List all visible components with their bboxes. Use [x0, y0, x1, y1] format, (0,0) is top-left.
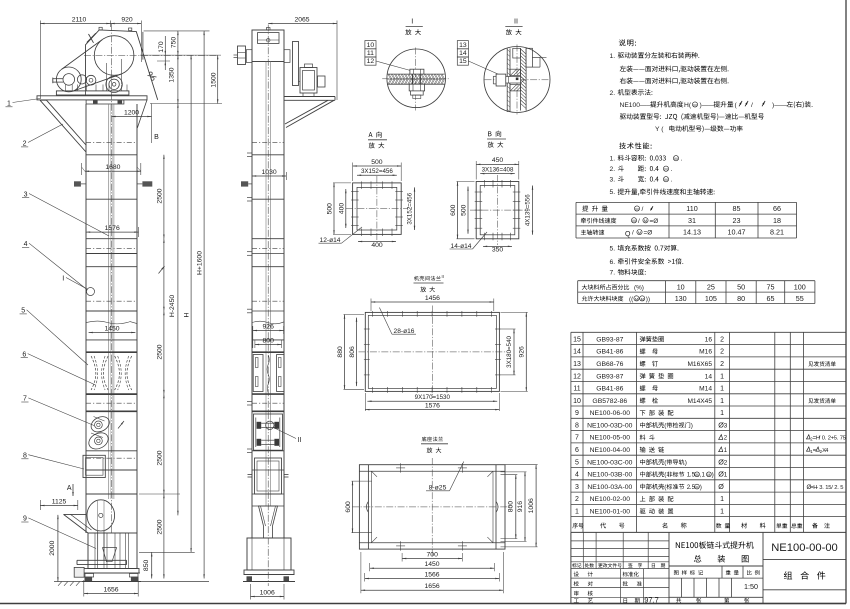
- svg-text:1: 1: [720, 496, 724, 503]
- svg-text:M16X65: M16X65: [687, 361, 712, 368]
- svg-text:5: 5: [21, 308, 25, 315]
- svg-text:GB41-86: GB41-86: [596, 386, 623, 393]
- svg-text:500: 500: [327, 203, 334, 215]
- svg-text:NE100-00-00: NE100-00-00: [771, 542, 838, 554]
- svg-text:2500: 2500: [157, 519, 164, 534]
- svg-text:8: 8: [575, 422, 579, 429]
- svg-text:1: 1: [720, 373, 724, 380]
- svg-text:H-2450: H-2450: [169, 295, 176, 318]
- svg-text:/: /: [638, 218, 640, 225]
- svg-text:M: M: [674, 156, 677, 161]
- svg-text:1656: 1656: [103, 586, 118, 593]
- svg-text:8: 8: [23, 453, 27, 460]
- svg-text:/: /: [632, 230, 634, 237]
- svg-text:1450: 1450: [424, 561, 439, 568]
- svg-text:4: 4: [24, 241, 28, 248]
- svg-text:1576: 1576: [425, 402, 440, 409]
- svg-text:M: M: [638, 230, 641, 235]
- svg-text:1: 1: [702, 472, 706, 479]
- svg-text:55: 55: [796, 294, 804, 303]
- svg-text:1: 1: [720, 508, 724, 515]
- svg-text:6: 6: [575, 447, 579, 454]
- svg-text:8.21: 8.21: [770, 228, 784, 237]
- svg-text:M: M: [641, 296, 644, 301]
- svg-text:350: 350: [492, 247, 504, 254]
- svg-text:1: 1: [720, 386, 724, 393]
- svg-text:B: B: [154, 134, 159, 141]
- svg-text:11: 11: [573, 386, 580, 393]
- svg-text:3.: 3.: [610, 177, 616, 184]
- svg-text:800: 800: [508, 501, 515, 513]
- svg-text:NE100——: NE100——: [620, 102, 654, 109]
- svg-text:3X152=456: 3X152=456: [407, 192, 414, 224]
- svg-text:2: 2: [23, 141, 27, 148]
- svg-text:1006: 1006: [528, 498, 535, 513]
- svg-text:500: 500: [371, 159, 383, 166]
- svg-text:5: 5: [843, 436, 846, 442]
- svg-text:)——: )——: [700, 102, 716, 109]
- svg-text:500: 500: [461, 204, 468, 216]
- svg-text:/: /: [642, 206, 644, 213]
- svg-text:12: 12: [573, 373, 581, 380]
- svg-text:.: .: [671, 166, 673, 173]
- svg-text:A: A: [67, 485, 72, 492]
- svg-text:700: 700: [427, 551, 439, 558]
- svg-text:600: 600: [450, 204, 457, 216]
- svg-text:Y (: Y (: [655, 126, 664, 133]
- svg-text:18: 18: [773, 216, 781, 225]
- svg-text:M: M: [696, 473, 699, 477]
- svg-text:M: M: [635, 296, 638, 301]
- svg-text:1: 1: [575, 508, 579, 515]
- svg-text:-: -: [816, 485, 818, 491]
- svg-text:926: 926: [263, 323, 275, 330]
- svg-text:7: 7: [23, 396, 27, 403]
- svg-text:5.: 5.: [610, 189, 616, 196]
- svg-text:10: 10: [573, 398, 581, 405]
- svg-text:12: 12: [367, 58, 375, 65]
- svg-text:1566: 1566: [424, 571, 439, 578]
- svg-text:2: 2: [724, 459, 728, 466]
- svg-text:/: /: [751, 102, 753, 109]
- svg-text:M: M: [696, 485, 699, 489]
- svg-text:1: 1: [724, 472, 728, 479]
- svg-text:450: 450: [492, 157, 504, 164]
- svg-text:9X170=1530: 9X170=1530: [415, 394, 451, 401]
- svg-text:GB93-87: GB93-87: [596, 336, 623, 343]
- svg-text:75: 75: [767, 283, 775, 292]
- svg-text:7.: 7.: [610, 270, 616, 277]
- svg-text:1.: 1.: [610, 53, 616, 60]
- svg-text:1125: 1125: [52, 498, 67, 505]
- svg-text:2500: 2500: [157, 450, 164, 465]
- svg-text:II: II: [442, 274, 444, 279]
- svg-text:M: M: [632, 218, 635, 223]
- svg-text:II: II: [298, 437, 302, 444]
- svg-text:10: 10: [677, 283, 685, 292]
- svg-text:130: 130: [675, 294, 687, 303]
- svg-text:13: 13: [459, 42, 467, 49]
- svg-text:11: 11: [367, 50, 374, 57]
- svg-text:880: 880: [337, 346, 344, 358]
- svg-text:NE100-03A-00: NE100-03A-00: [587, 484, 632, 491]
- svg-text:GB68-76: GB68-76: [596, 361, 623, 368]
- svg-text:31: 31: [688, 216, 696, 225]
- svg-text:14: 14: [573, 349, 581, 356]
- svg-text:NE100-06-00: NE100-06-00: [590, 410, 631, 417]
- svg-text:806: 806: [349, 346, 356, 358]
- svg-text:7: 7: [575, 435, 579, 442]
- svg-text:2500: 2500: [157, 188, 164, 203]
- svg-text:II: II: [514, 17, 518, 26]
- svg-text:1680: 1680: [105, 164, 120, 171]
- svg-text:): ): [712, 472, 714, 479]
- svg-text:65: 65: [767, 294, 775, 303]
- svg-text:)——: )——: [772, 102, 788, 109]
- svg-text:M14X45: M14X45: [687, 398, 712, 405]
- svg-text:2: 2: [575, 496, 579, 503]
- svg-text:NE100-03D-00: NE100-03D-00: [587, 422, 633, 429]
- svg-text:3: 3: [724, 422, 728, 429]
- svg-text:3X152=456: 3X152=456: [361, 168, 393, 175]
- svg-text:66: 66: [773, 204, 781, 213]
- svg-text:1576: 1576: [105, 225, 120, 232]
- svg-text:NE100-01-00: NE100-01-00: [590, 508, 631, 515]
- svg-text:M: M: [693, 102, 696, 107]
- svg-text:800: 800: [263, 337, 275, 344]
- svg-text:GB5782-86: GB5782-86: [592, 398, 627, 405]
- svg-text:NE100-04-00: NE100-04-00: [590, 447, 631, 454]
- svg-text:M: M: [664, 167, 667, 172]
- svg-text:850: 850: [143, 560, 150, 572]
- svg-text:M: M: [664, 177, 667, 182]
- svg-text:916: 916: [517, 501, 524, 513]
- svg-text:): ): [700, 484, 702, 491]
- svg-text:Ø: Ø: [718, 482, 724, 491]
- svg-text:3X180=540: 3X180=540: [506, 335, 513, 367]
- svg-text:6.: 6.: [610, 259, 616, 266]
- svg-text:1200: 1200: [124, 109, 139, 116]
- svg-text:M: M: [635, 206, 638, 211]
- svg-text:10.47: 10.47: [728, 228, 746, 237]
- svg-text:920: 920: [121, 16, 133, 23]
- svg-text:1006: 1006: [260, 589, 275, 596]
- svg-text:.: .: [681, 156, 683, 163]
- svg-text:2110: 2110: [72, 16, 87, 23]
- svg-text:1500: 1500: [210, 72, 217, 87]
- svg-text:80: 80: [737, 294, 745, 303]
- svg-text:): ): [691, 422, 693, 429]
- svg-text:600: 600: [345, 501, 352, 513]
- svg-text:3: 3: [24, 191, 28, 198]
- svg-text:97.7: 97.7: [644, 595, 658, 604]
- svg-text:25: 25: [707, 283, 715, 292]
- svg-text:170: 170: [158, 41, 165, 53]
- svg-text:M16: M16: [699, 349, 712, 356]
- svg-text:)): )): [646, 296, 650, 303]
- svg-text:15: 15: [573, 336, 581, 343]
- svg-text:400: 400: [338, 203, 345, 215]
- svg-text:9: 9: [575, 410, 579, 417]
- svg-text:GB41-86: GB41-86: [596, 349, 623, 356]
- svg-text:14.13: 14.13: [683, 228, 701, 237]
- svg-text:GB93-87: GB93-87: [596, 373, 623, 380]
- svg-text:2: 2: [720, 361, 724, 368]
- svg-text:.: .: [671, 177, 673, 184]
- svg-text:3: 3: [575, 484, 579, 491]
- svg-text:M: M: [707, 473, 710, 477]
- svg-text:1350: 1350: [168, 67, 175, 82]
- svg-text:2: 2: [720, 349, 724, 356]
- svg-text:I: I: [62, 273, 64, 282]
- svg-text:9: 9: [23, 516, 27, 523]
- svg-text:NE100-03C-00: NE100-03C-00: [587, 459, 633, 466]
- svg-text:110: 110: [686, 204, 697, 213]
- svg-text:=Ø: =Ø: [644, 230, 653, 237]
- svg-text:4X139=556: 4X139=556: [525, 194, 532, 226]
- svg-text:1: 1: [720, 398, 724, 405]
- svg-text:2000: 2000: [49, 540, 56, 555]
- svg-text:1656: 1656: [425, 583, 440, 590]
- svg-text:85: 85: [733, 204, 741, 213]
- svg-text:2065: 2065: [294, 16, 309, 23]
- svg-text:1.: 1.: [610, 156, 616, 163]
- svg-text:2500: 2500: [157, 344, 164, 359]
- svg-text:1: 1: [720, 410, 724, 417]
- svg-text:4: 4: [575, 472, 579, 479]
- svg-text:2.: 2.: [610, 166, 616, 173]
- svg-text:NE100-05-00: NE100-05-00: [590, 435, 631, 442]
- svg-text:3X136=408: 3X136=408: [482, 166, 514, 173]
- svg-text:6: 6: [22, 351, 26, 358]
- svg-text:Q: Q: [625, 231, 631, 238]
- svg-text:1030: 1030: [262, 169, 277, 176]
- svg-text:16: 16: [705, 336, 713, 343]
- svg-text:NE100-03B-00: NE100-03B-00: [587, 472, 632, 479]
- svg-text:13: 13: [573, 361, 581, 368]
- svg-text:2: 2: [720, 336, 724, 343]
- svg-text:NE100-02-00: NE100-02-00: [590, 496, 631, 503]
- svg-text:1450: 1450: [104, 325, 119, 332]
- svg-text:=Ø: =Ø: [650, 218, 659, 225]
- svg-text:926: 926: [519, 346, 526, 358]
- svg-text:2.: 2.: [610, 90, 616, 97]
- svg-text:I: I: [411, 17, 413, 26]
- svg-text:(%): (%): [634, 284, 644, 291]
- svg-text:H+1600: H+1600: [197, 251, 204, 275]
- svg-text:23: 23: [733, 216, 741, 225]
- svg-text:1: 1: [7, 101, 11, 108]
- svg-text:14: 14: [705, 373, 713, 380]
- svg-text:14: 14: [459, 50, 467, 57]
- svg-text:15: 15: [459, 58, 467, 65]
- svg-text:50: 50: [737, 283, 745, 292]
- svg-text:): ): [685, 459, 687, 466]
- svg-text:400: 400: [371, 242, 383, 249]
- svg-text:750: 750: [171, 37, 178, 49]
- svg-text:1:50: 1:50: [744, 582, 758, 591]
- svg-text:H: H: [184, 312, 191, 317]
- svg-text:5.: 5.: [610, 246, 616, 253]
- svg-text:5: 5: [575, 459, 579, 466]
- svg-text:H(: H(: [684, 102, 692, 109]
- svg-text:100: 100: [794, 283, 806, 292]
- svg-text:105: 105: [705, 294, 717, 303]
- svg-text:5: 5: [840, 485, 843, 491]
- svg-text:10: 10: [367, 42, 375, 49]
- svg-text:M: M: [644, 218, 647, 223]
- svg-text:M14: M14: [699, 386, 712, 393]
- svg-text:1456: 1456: [425, 295, 440, 302]
